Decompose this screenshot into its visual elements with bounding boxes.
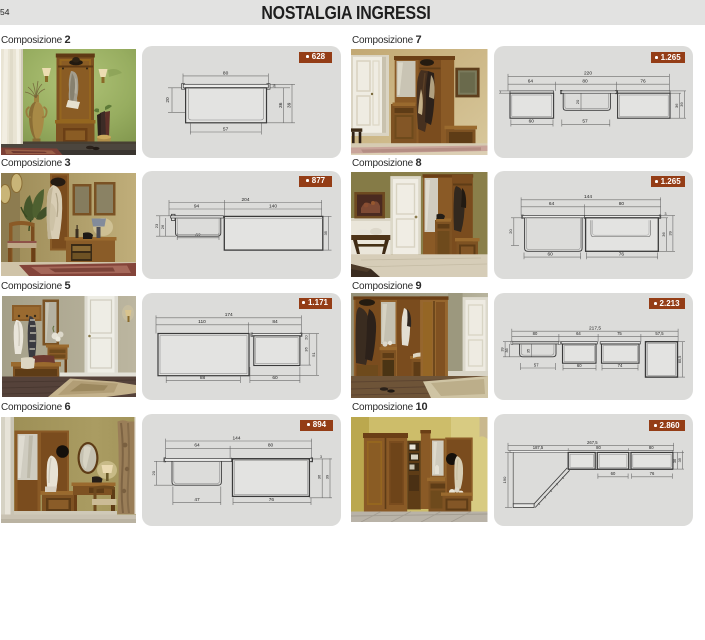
svg-text:36: 36: [304, 347, 309, 352]
svg-text:60: 60: [529, 119, 535, 125]
svg-text:51: 51: [311, 352, 316, 357]
svg-text:187,5: 187,5: [533, 445, 544, 450]
svg-text:47: 47: [194, 497, 200, 503]
svg-text:60,5: 60,5: [678, 356, 682, 363]
svg-text:60: 60: [548, 251, 554, 257]
svg-text:39: 39: [679, 102, 684, 107]
svg-text:64: 64: [549, 201, 555, 207]
svg-text:80: 80: [596, 445, 601, 450]
svg-text:80: 80: [223, 70, 229, 76]
svg-text:80: 80: [268, 443, 274, 449]
svg-text:80: 80: [649, 445, 654, 450]
svg-text:39: 39: [287, 102, 293, 108]
svg-text:20: 20: [165, 97, 171, 103]
svg-text:76: 76: [619, 251, 625, 257]
svg-text:80: 80: [533, 331, 538, 336]
svg-text:217,5: 217,5: [589, 326, 601, 332]
svg-text:80: 80: [619, 201, 625, 207]
svg-text:3: 3: [665, 211, 667, 215]
svg-text:60: 60: [577, 363, 582, 368]
svg-text:20: 20: [575, 99, 580, 104]
svg-text:3: 3: [320, 455, 322, 459]
svg-text:39: 39: [667, 230, 672, 235]
svg-text:23: 23: [154, 223, 159, 228]
svg-text:39: 39: [324, 474, 329, 479]
svg-text:39: 39: [501, 347, 505, 351]
svg-text:64: 64: [194, 443, 200, 449]
svg-text:64: 64: [528, 79, 534, 85]
svg-text:84: 84: [272, 319, 278, 325]
svg-text:174: 174: [225, 312, 233, 318]
svg-text:35: 35: [527, 349, 531, 353]
svg-text:144: 144: [232, 435, 240, 441]
svg-text:57: 57: [534, 363, 539, 368]
svg-text:190: 190: [502, 476, 507, 483]
svg-text:35: 35: [323, 230, 328, 235]
svg-text:64: 64: [576, 331, 581, 336]
svg-text:3: 3: [272, 83, 274, 87]
svg-text:110: 110: [198, 319, 206, 325]
svg-text:75: 75: [617, 331, 622, 336]
svg-text:57: 57: [223, 126, 229, 132]
svg-text:36: 36: [317, 474, 322, 479]
svg-text:140: 140: [269, 203, 277, 209]
svg-text:94: 94: [194, 203, 200, 209]
svg-text:76: 76: [640, 79, 646, 85]
svg-text:36: 36: [505, 348, 509, 352]
svg-text:26: 26: [160, 224, 165, 229]
svg-text:62: 62: [195, 232, 201, 238]
svg-text:36: 36: [673, 459, 677, 463]
svg-text:39: 39: [678, 458, 682, 462]
svg-text:36: 36: [661, 231, 666, 236]
svg-text:76: 76: [269, 497, 275, 503]
svg-text:57,5: 57,5: [655, 331, 664, 336]
svg-text:20: 20: [304, 335, 309, 340]
svg-text:36: 36: [278, 102, 284, 108]
svg-text:220: 220: [584, 71, 592, 77]
svg-text:80: 80: [582, 79, 588, 85]
svg-text:204: 204: [241, 197, 249, 203]
svg-text:60: 60: [272, 375, 278, 381]
svg-text:20: 20: [151, 470, 156, 475]
svg-text:76: 76: [650, 471, 655, 476]
svg-text:20: 20: [508, 228, 513, 233]
svg-text:74: 74: [618, 363, 623, 368]
svg-text:60: 60: [611, 471, 616, 476]
svg-text:57: 57: [582, 119, 588, 125]
svg-text:144: 144: [584, 194, 592, 200]
